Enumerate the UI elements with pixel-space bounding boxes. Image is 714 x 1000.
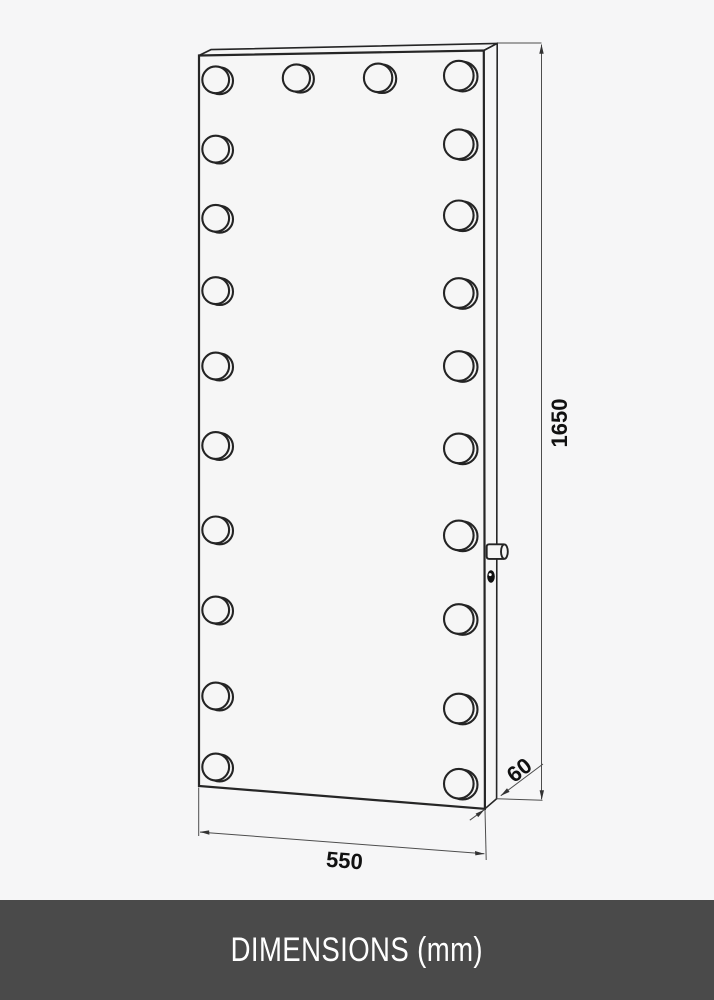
- svg-text:1650: 1650: [547, 399, 572, 448]
- svg-text:550: 550: [325, 847, 364, 875]
- svg-text:60: 60: [502, 753, 537, 788]
